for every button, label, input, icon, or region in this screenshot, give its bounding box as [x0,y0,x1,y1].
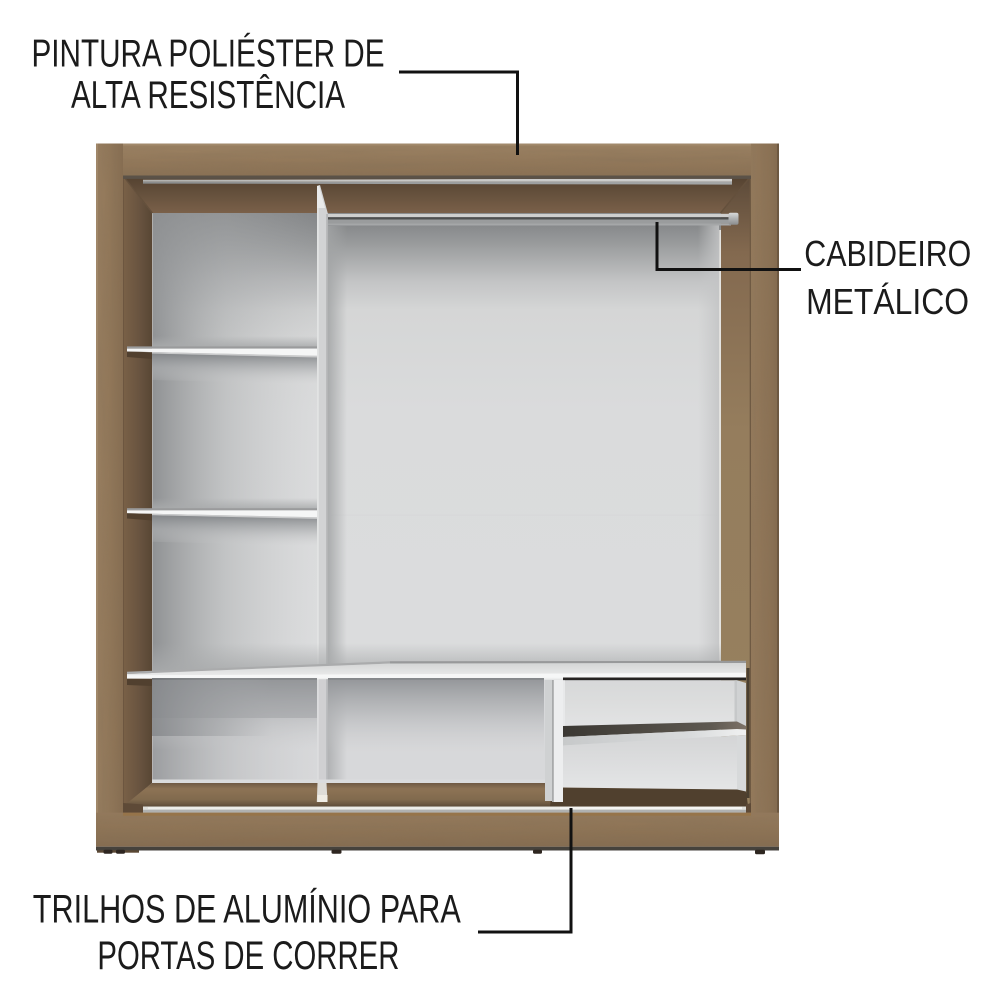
svg-text:PORTAS DE CORRER: PORTAS DE CORRER [97,934,399,978]
svg-text:PINTURA POLIÉSTER DE: PINTURA POLIÉSTER DE [32,33,385,76]
svg-text:ALTA RESISTÊNCIA: ALTA RESISTÊNCIA [71,74,345,117]
svg-text:METÁLICO: METÁLICO [806,281,969,322]
svg-text:TRILHOS DE ALUMÍNIO PARA: TRILHOS DE ALUMÍNIO PARA [33,887,461,932]
svg-text:CABIDEIRO: CABIDEIRO [804,233,971,274]
